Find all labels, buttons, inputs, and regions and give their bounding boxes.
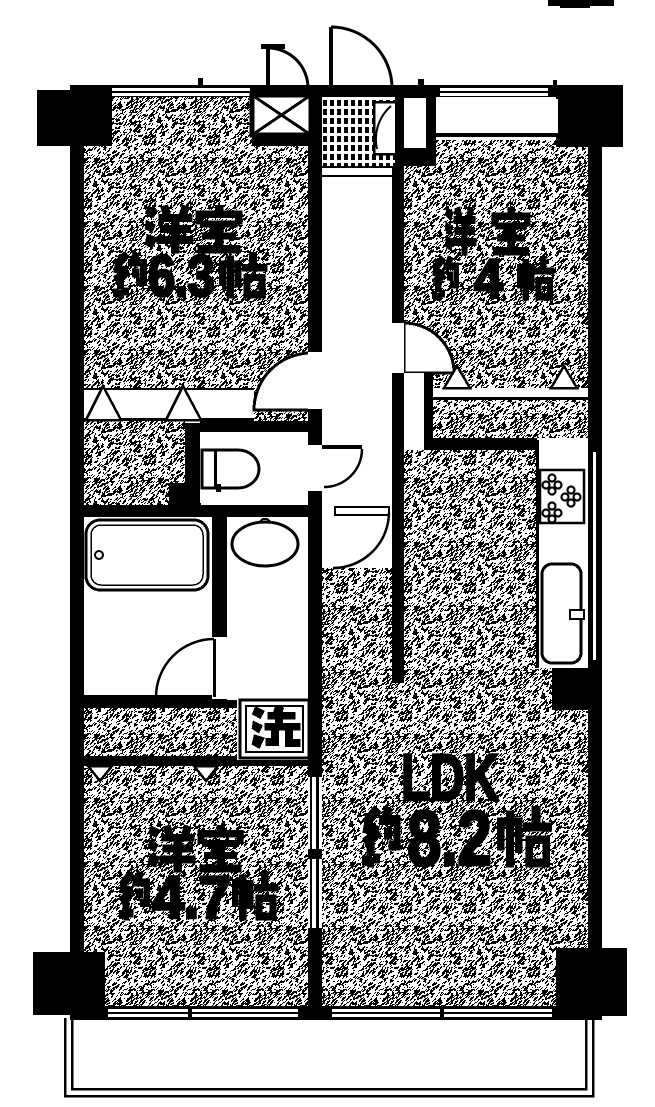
svg-text:4: 4 <box>474 247 503 310</box>
svg-text:8.2: 8.2 <box>407 794 491 882</box>
svg-text:6.3: 6.3 <box>148 244 214 309</box>
svg-text:4.7: 4.7 <box>152 864 230 931</box>
